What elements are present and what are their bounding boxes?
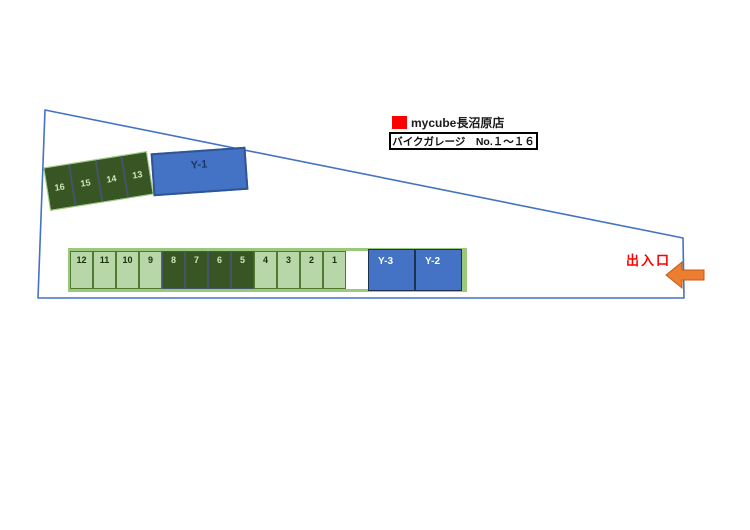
unit-y2: Y-2 [415, 249, 462, 291]
unit-y3: Y-3 [368, 249, 415, 291]
unit-2: 2 [300, 251, 323, 289]
store-title: mycube長沼原店 [411, 114, 504, 131]
empty-slot [346, 251, 368, 289]
garage-range-label: バイクガレージ No.１～１６ [392, 134, 535, 149]
unit-3: 3 [277, 251, 300, 289]
unit-9: 9 [139, 251, 162, 289]
unit-7: 7 [185, 251, 208, 289]
site-map: mycube長沼原店 バイクガレージ No.１～１６ 16 15 14 13 Y… [0, 0, 750, 530]
entrance-arrow-icon [666, 262, 704, 288]
unit-8: 8 [162, 251, 185, 289]
unit-y1: Y-1 [151, 147, 249, 197]
unit-12: 12 [70, 251, 93, 289]
unit-5: 5 [231, 251, 254, 289]
unit-10: 10 [116, 251, 139, 289]
header: mycube長沼原店 [392, 113, 504, 131]
garage-range-box: バイクガレージ No.１～１６ [389, 132, 538, 150]
unit-11: 11 [93, 251, 116, 289]
brand-marker-icon [392, 116, 407, 129]
garage-row-1-12: 12 11 10 9 8 7 6 5 4 3 2 1 Y-3 Y-2 [68, 248, 467, 292]
unit-1: 1 [323, 251, 346, 289]
unit-y1-label: Y-1 [153, 149, 245, 174]
unit-4: 4 [254, 251, 277, 289]
unit-6: 6 [208, 251, 231, 289]
entrance-label: 出入口 [626, 250, 671, 269]
